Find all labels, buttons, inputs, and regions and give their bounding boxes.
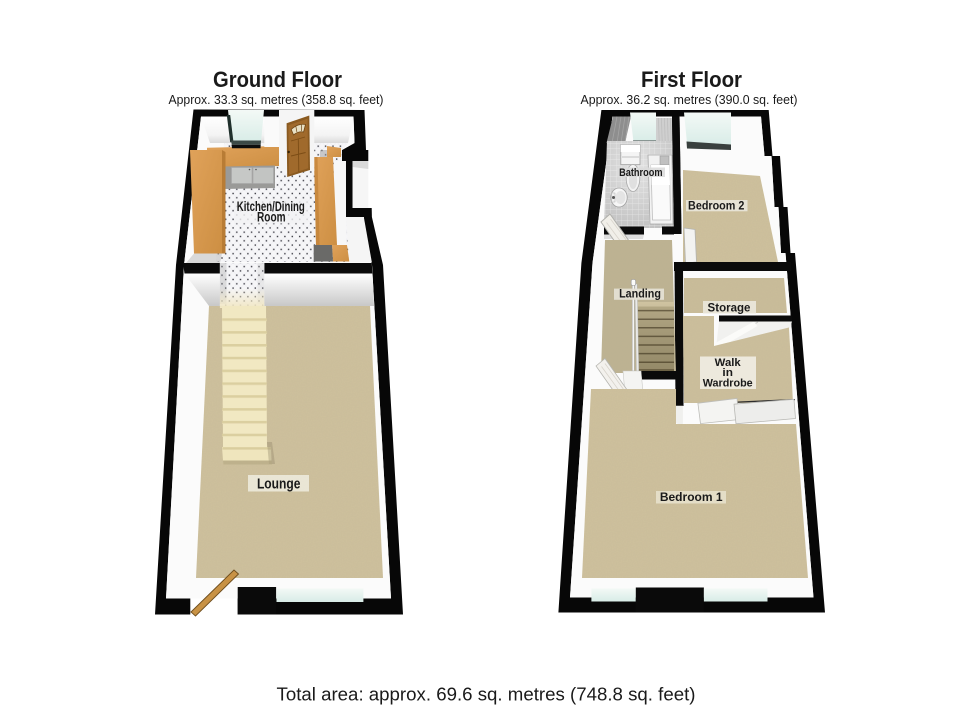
svg-text:Landing: Landing: [619, 289, 661, 301]
svg-text:Storage: Storage: [708, 300, 751, 314]
svg-text:Bathroom: Bathroom: [619, 167, 663, 179]
svg-text:Approx. 36.2 sq. metres (390.0: Approx. 36.2 sq. metres (390.0 sq. feet): [581, 92, 798, 107]
svg-text:Bedroom 2: Bedroom 2: [688, 200, 744, 212]
svg-text:Ground Floor: Ground Floor: [213, 67, 342, 92]
svg-text:Wardrobe: Wardrobe: [703, 377, 753, 389]
svg-text:First Floor: First Floor: [641, 67, 742, 92]
svg-text:Room: Room: [257, 209, 286, 224]
svg-text:Total area: approx. 69.6 sq. m: Total area: approx. 69.6 sq. metres (748…: [277, 684, 696, 705]
svg-text:Lounge: Lounge: [257, 476, 301, 493]
svg-text:Approx. 33.3 sq. metres (358.8: Approx. 33.3 sq. metres (358.8 sq. feet): [169, 92, 384, 107]
svg-text:Bedroom 1: Bedroom 1: [660, 490, 723, 504]
